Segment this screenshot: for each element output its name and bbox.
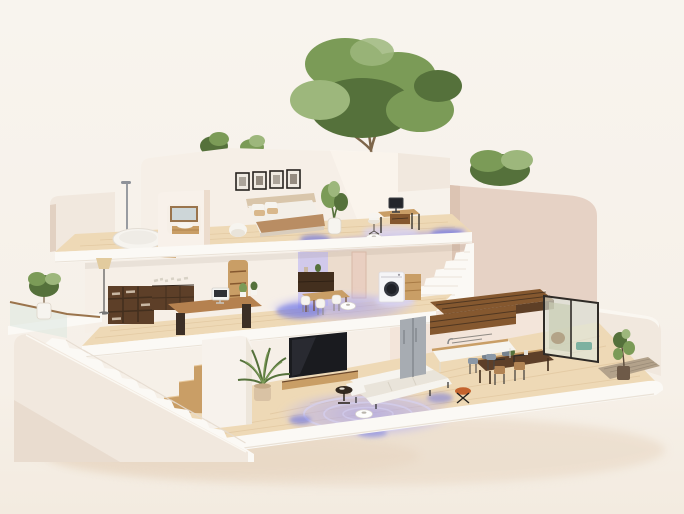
bath-mirror xyxy=(171,207,197,221)
house-cutaway-render xyxy=(0,0,684,514)
patio-chair xyxy=(551,332,565,344)
desk-monitor xyxy=(389,198,403,208)
ground-partition-wall xyxy=(202,336,252,430)
shower-head xyxy=(121,181,131,184)
scene-stage xyxy=(0,0,684,514)
bookshelf xyxy=(108,286,154,324)
left-parapet-shade xyxy=(50,204,56,252)
bedroom-armchair xyxy=(229,223,247,237)
bath-sink xyxy=(177,223,193,229)
robot-vacuum-middle xyxy=(341,302,356,310)
desk-plant-2 xyxy=(251,282,258,291)
interior-door xyxy=(352,252,366,298)
washing-machine xyxy=(379,272,404,302)
bathtub xyxy=(113,229,163,250)
laundry-cabinet xyxy=(405,274,421,300)
sliding-glass-doors xyxy=(544,296,598,362)
stepped-parapet xyxy=(398,153,450,192)
table-vase xyxy=(524,350,528,355)
patio-bench xyxy=(576,342,592,350)
desk-plant xyxy=(239,283,247,293)
robot-vacuum-ground xyxy=(356,410,373,418)
